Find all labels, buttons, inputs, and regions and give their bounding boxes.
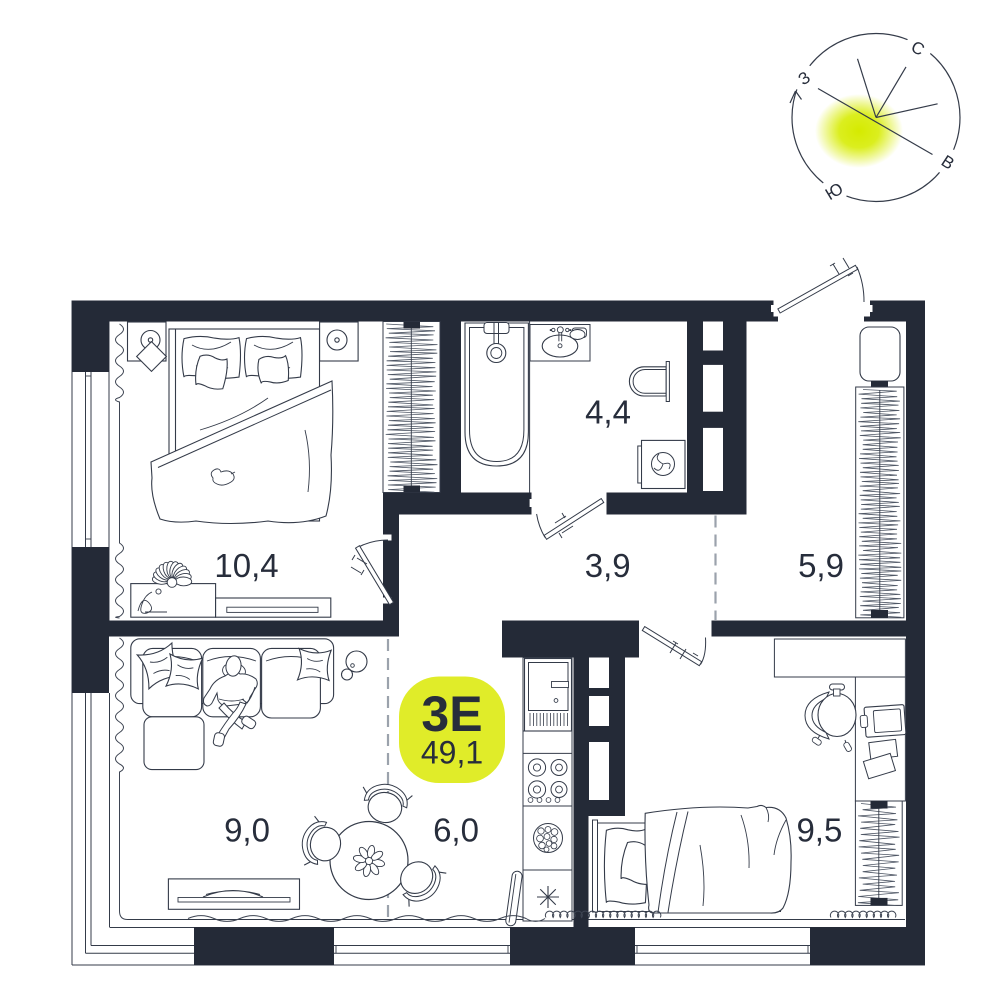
svg-text:49,1: 49,1 bbox=[421, 735, 483, 771]
svg-text:4,4: 4,4 bbox=[585, 394, 631, 431]
svg-text:6,0: 6,0 bbox=[433, 812, 479, 849]
svg-text:5,9: 5,9 bbox=[798, 547, 844, 584]
svg-text:3,9: 3,9 bbox=[585, 547, 631, 584]
svg-text:10,4: 10,4 bbox=[214, 547, 278, 584]
svg-text:9,0: 9,0 bbox=[224, 812, 270, 849]
svg-text:9,5: 9,5 bbox=[796, 812, 842, 849]
